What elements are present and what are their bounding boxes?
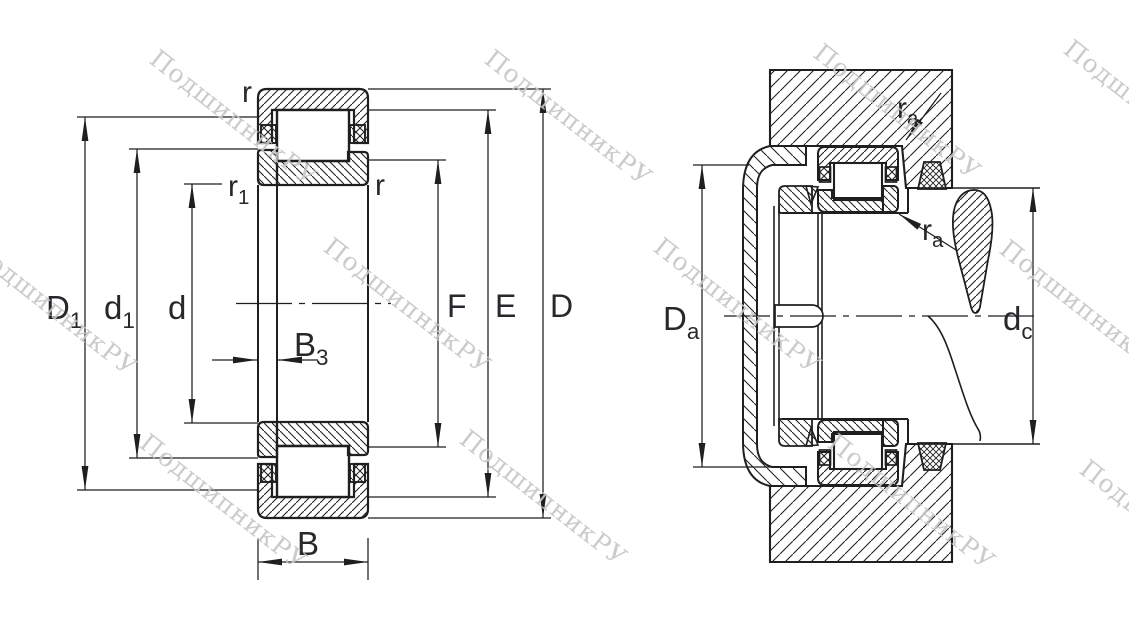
label-dc: dc — [1003, 300, 1033, 344]
mounted-bottom-mirror — [770, 419, 952, 562]
watermark-text: ПодшипникРУ — [318, 232, 496, 380]
seal-bottom — [918, 443, 946, 470]
watermark-text: ПодшипникРУ — [1058, 34, 1129, 182]
watermark-text: ПодшипникРУ — [1074, 454, 1129, 602]
mounted-cage-left-top — [820, 167, 831, 182]
mounted-cage-right-bottom — [886, 450, 897, 465]
shaft-break-line — [928, 316, 980, 441]
label-E: E — [495, 288, 516, 324]
mounted-roller-top — [834, 163, 882, 200]
mounted-collar-top — [883, 186, 898, 212]
label-d: d — [168, 289, 186, 326]
label-r1: r1 — [228, 170, 249, 209]
right-view-mounting-arrangement: ra ra Da dc — [663, 70, 1040, 562]
mounted-cage-right-top — [886, 167, 897, 182]
label-ra-bottom: ra — [922, 214, 944, 252]
label-B3: B3 — [294, 326, 329, 370]
roller-bottom — [277, 446, 349, 497]
cage-right-top — [350, 125, 365, 143]
technical-drawing-page: r r1 r D1 d1 d B3 B F E D — [0, 0, 1129, 632]
cage-right-bottom — [350, 464, 365, 482]
label-r-right: r — [375, 169, 385, 202]
label-r-top: r — [242, 76, 252, 109]
cage-left-bottom — [261, 464, 276, 482]
bearing-drawing-svg: r r1 r D1 d1 d B3 B F E D — [0, 0, 1129, 632]
left-view-bearing-cross-section: r r1 r D1 d1 d B3 B F E D — [46, 76, 573, 580]
shaft-breakout-section — [953, 190, 993, 313]
label-D: D — [550, 288, 573, 324]
mounted-collar-bottom — [883, 420, 898, 446]
label-d1: d1 — [104, 289, 135, 333]
label-F: F — [447, 288, 467, 324]
watermark-text: ПодшипникРУ — [479, 44, 657, 192]
bearing-bottom-section — [258, 422, 368, 518]
loose-collar-bottom — [258, 422, 277, 457]
seal-top — [918, 162, 946, 189]
label-Da: Da — [663, 300, 700, 344]
